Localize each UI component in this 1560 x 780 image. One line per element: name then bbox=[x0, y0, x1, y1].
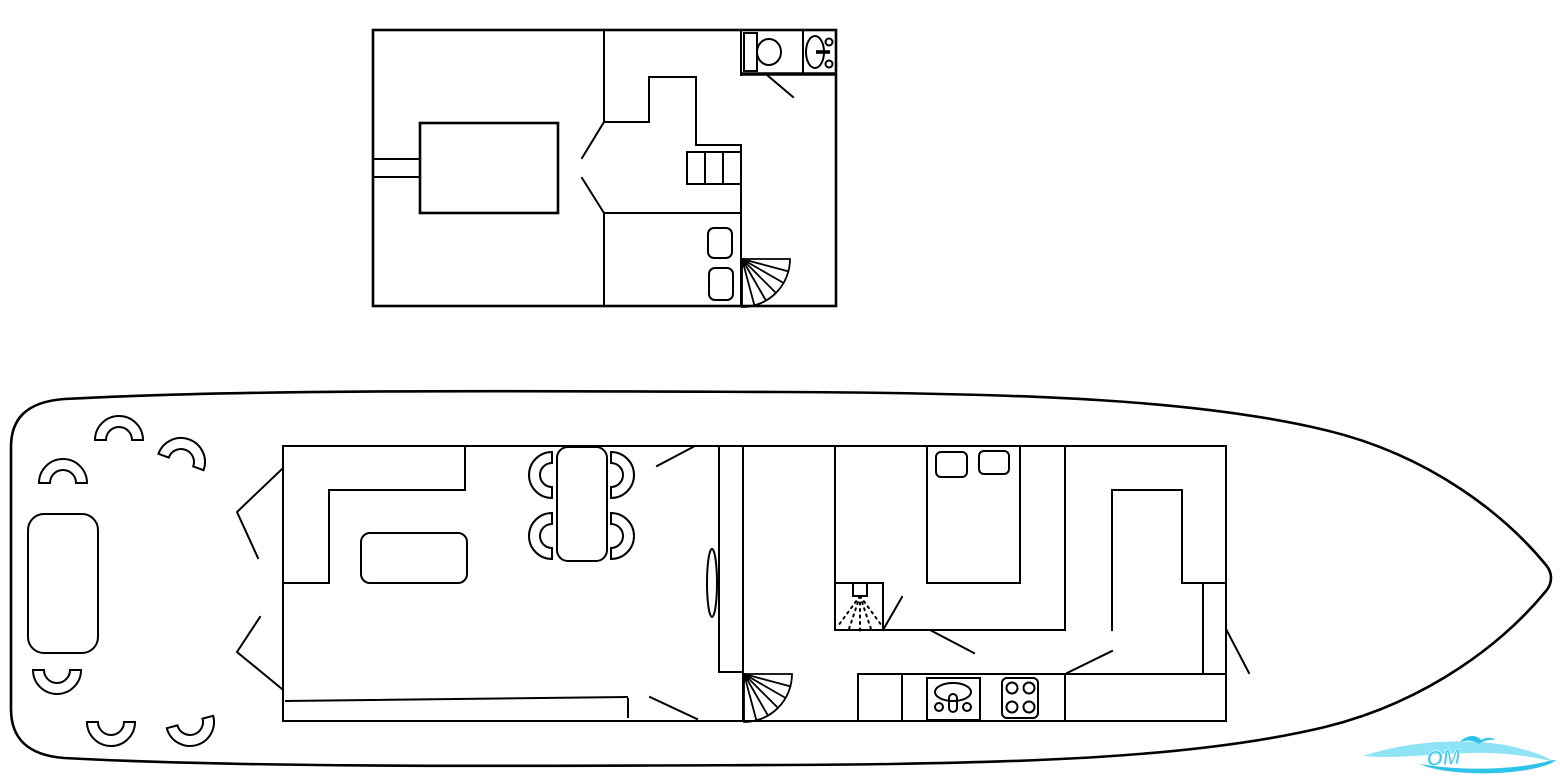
door-swing bbox=[883, 597, 902, 630]
boat-hull-outline bbox=[11, 391, 1551, 766]
wardrobe bbox=[1112, 490, 1226, 630]
watermark-text: OM bbox=[1426, 746, 1462, 771]
spiral-staircase bbox=[744, 674, 792, 722]
chair bbox=[611, 452, 634, 498]
seat bbox=[709, 268, 733, 300]
seat bbox=[95, 416, 143, 440]
seat bbox=[158, 431, 211, 470]
chair bbox=[529, 452, 552, 498]
chair bbox=[611, 513, 634, 559]
l-sofa bbox=[283, 446, 465, 583]
upper-stepped-wall bbox=[604, 30, 741, 145]
stove-icon bbox=[1002, 678, 1038, 718]
shower-icon bbox=[835, 583, 883, 631]
boat-floorplan-page: OM bbox=[0, 0, 1560, 780]
galley bbox=[858, 629, 1249, 721]
watermark-logo: OM bbox=[1363, 736, 1556, 773]
angled-doorway bbox=[582, 178, 604, 213]
corridor-wall bbox=[719, 446, 743, 672]
coffee-table bbox=[361, 533, 467, 583]
double-bed bbox=[927, 446, 1020, 583]
sliding-door bbox=[707, 549, 717, 617]
double-bed bbox=[420, 123, 558, 213]
pillow bbox=[936, 452, 967, 477]
door-swing bbox=[1226, 629, 1249, 673]
upper-deck-plan bbox=[373, 30, 836, 307]
upper-cabin-wall bbox=[604, 213, 741, 306]
aft-deck bbox=[28, 416, 219, 751]
dining-table bbox=[557, 447, 607, 561]
angled-screen bbox=[237, 617, 282, 689]
deck-table bbox=[28, 514, 98, 653]
companionway-steps bbox=[687, 152, 741, 184]
seat bbox=[87, 722, 135, 746]
seat bbox=[33, 670, 81, 694]
door-swing bbox=[930, 630, 974, 653]
door-swing bbox=[1067, 651, 1112, 673]
pillow bbox=[979, 451, 1009, 474]
door-swing bbox=[650, 697, 697, 719]
main-deck-plan bbox=[11, 391, 1551, 766]
counter-dividers bbox=[858, 674, 1065, 721]
bench-line bbox=[286, 697, 627, 701]
seat bbox=[167, 716, 220, 752]
sink-icon bbox=[927, 678, 980, 720]
seat bbox=[39, 459, 87, 483]
chair bbox=[529, 513, 552, 559]
cabin bbox=[927, 446, 1226, 674]
angled-doorway bbox=[582, 122, 604, 158]
washbasin-icon bbox=[806, 36, 833, 68]
door-swing bbox=[657, 446, 695, 466]
toilet-icon bbox=[744, 33, 781, 71]
side-shelf bbox=[375, 159, 420, 177]
spiral-staircase bbox=[742, 259, 790, 307]
door-swing bbox=[767, 75, 793, 97]
angled-screen bbox=[237, 469, 282, 558]
upper-bathroom bbox=[740, 30, 836, 97]
salon bbox=[283, 446, 697, 719]
seat bbox=[708, 228, 732, 258]
floorplan-canvas: OM bbox=[0, 0, 1560, 780]
